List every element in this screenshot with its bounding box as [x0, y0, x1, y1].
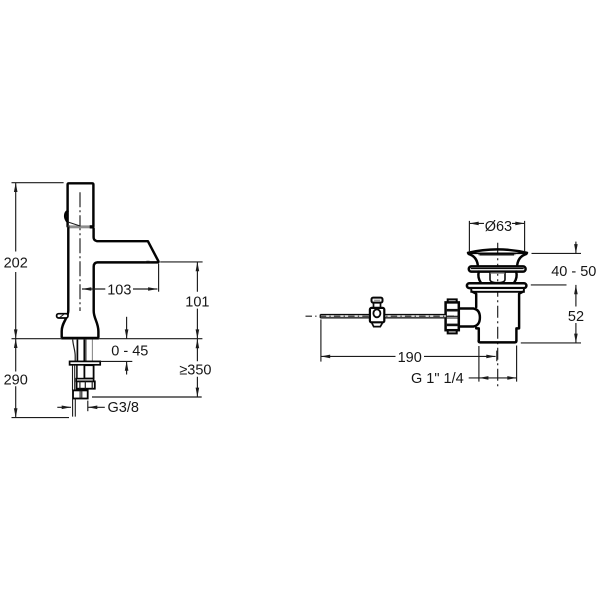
svg-text:40 - 50: 40 - 50 — [551, 264, 596, 280]
svg-text:52: 52 — [568, 309, 584, 325]
svg-text:190: 190 — [398, 350, 422, 366]
svg-text:103: 103 — [107, 283, 131, 299]
svg-text:290: 290 — [4, 372, 28, 388]
svg-text:Ø63: Ø63 — [485, 219, 512, 235]
svg-text:202: 202 — [4, 256, 28, 272]
svg-text:101: 101 — [185, 295, 209, 311]
svg-text:≥350: ≥350 — [179, 362, 211, 378]
svg-text:G3/8: G3/8 — [108, 400, 139, 416]
svg-text:G 1" 1/4: G 1" 1/4 — [411, 371, 464, 387]
svg-text:0 - 45: 0 - 45 — [111, 344, 148, 360]
